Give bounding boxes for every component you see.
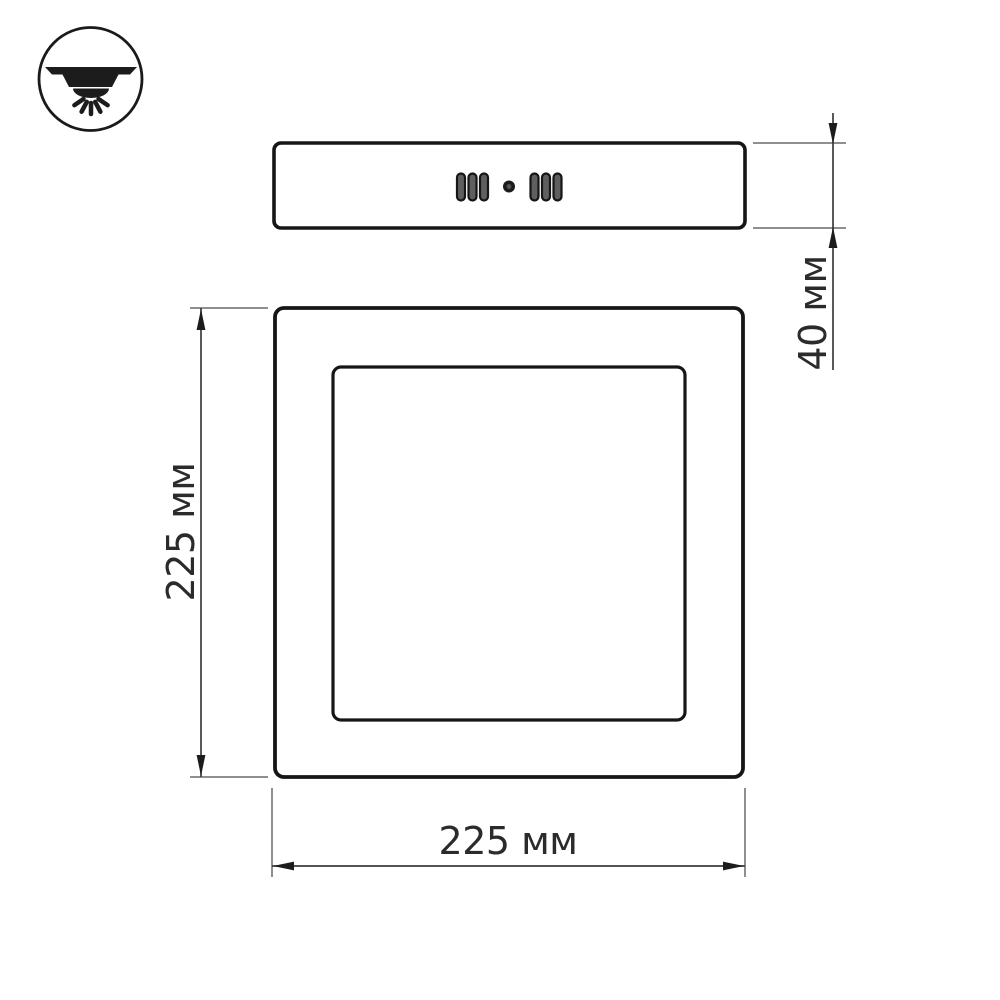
depth-dimension: 40 мм [753,113,846,371]
vent-slot [469,174,477,201]
surface-mount-ceiling-light-icon [39,28,142,131]
vent-slot [531,174,539,201]
icon-fixture-body [63,75,119,88]
side-view [274,143,745,228]
vent-slots-left [457,174,488,201]
vent-slot [480,174,488,201]
vent-slots-right [531,174,562,201]
front-view-inner-panel [333,367,685,720]
arrowhead-up-icon [829,227,838,248]
arrowhead-down-icon [829,123,838,144]
icon-ceiling-bar [45,67,137,75]
height-dimension-label: 225 мм [159,463,203,602]
technical-drawing-page: 40 мм 225 мм 225 мм [0,0,1000,1000]
technical-drawing: 40 мм 225 мм 225 мм [0,0,1000,1000]
height-dimension: 225 мм [159,308,268,777]
vent-slot [554,174,562,201]
front-view [275,308,743,777]
center-screw-dot-highlight [507,184,512,189]
arrowhead-right-icon [723,862,744,871]
arrowhead-down-icon [197,755,206,776]
width-dimension: 225 мм [272,788,745,877]
width-dimension-label: 225 мм [439,819,578,863]
depth-dimension-label: 40 мм [791,255,835,370]
vent-slot [457,174,465,201]
arrowhead-left-icon [273,862,294,871]
vent-slot [542,174,550,201]
arrowhead-up-icon [197,309,206,330]
